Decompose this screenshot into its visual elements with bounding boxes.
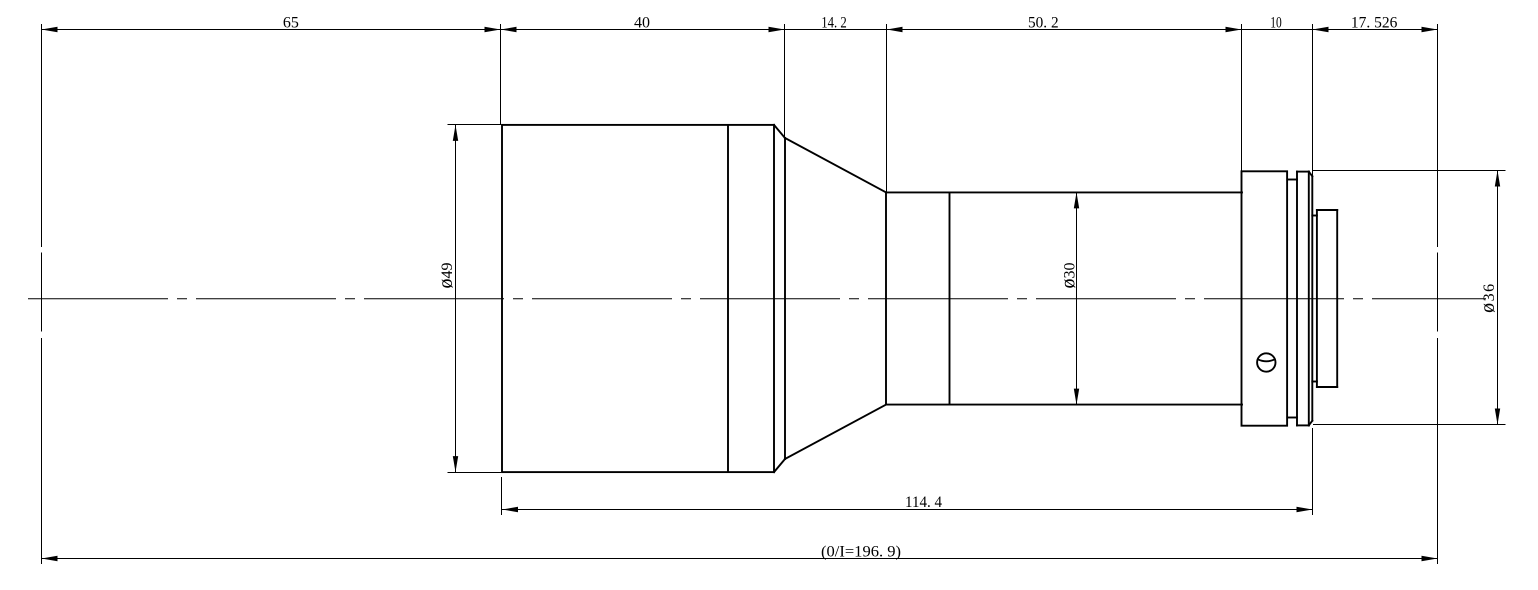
svg-text:40: 40	[634, 14, 650, 31]
svg-text:ø30: ø30	[1058, 263, 1080, 289]
svg-text:ø49: ø49	[435, 263, 457, 289]
svg-text:(0/I=196. 9): (0/I=196. 9)	[821, 543, 901, 560]
svg-text:50. 2: 50. 2	[1028, 14, 1059, 31]
svg-text:ø36: ø36	[1477, 282, 1499, 313]
svg-text:114. 4: 114. 4	[905, 494, 942, 511]
svg-text:65: 65	[283, 14, 299, 31]
svg-text:14. 2: 14. 2	[821, 14, 847, 31]
svg-text:17. 526: 17. 526	[1351, 14, 1398, 31]
svg-text:10: 10	[1270, 14, 1282, 31]
